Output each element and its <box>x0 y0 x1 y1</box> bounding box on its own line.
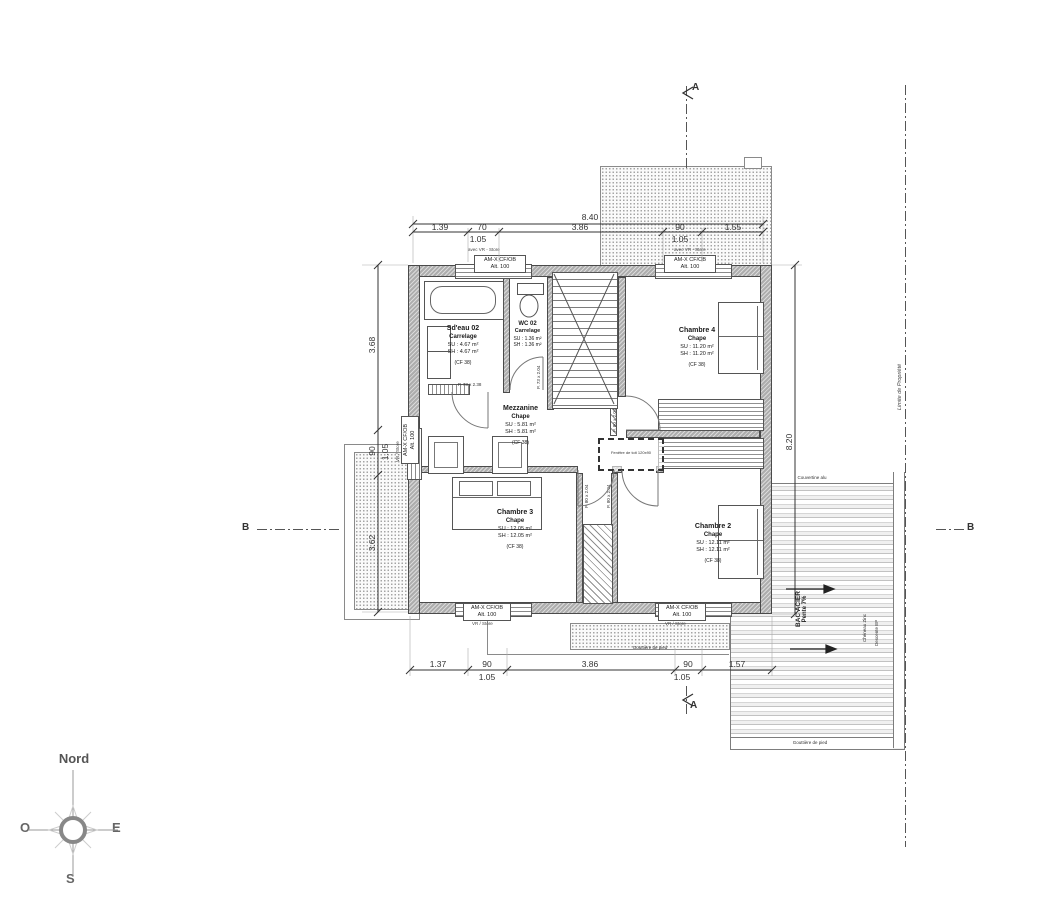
door-label-ch3: P. 80 x 2.04 <box>584 474 589 508</box>
room-sh: SH : 12.05 m² <box>470 533 560 540</box>
descente-ep-label: Descente EP <box>874 592 879 646</box>
room-name: Chambre 2 <box>668 522 758 531</box>
room-name: Mezzanine <box>478 404 563 413</box>
room-sh: SH : 12.11 m² <box>668 547 758 554</box>
room-label-chambre-3: Chambre 3 Chape SU : 12.05 m² SH : 12.05… <box>470 508 560 551</box>
section-a-letter-bottom: A <box>690 700 697 711</box>
room-label-sdeau: Sd'eau 02 Carrelage SU : 4.67 m² SH : 4.… <box>418 324 508 367</box>
window-alt: Alt. 100 <box>667 264 713 271</box>
room-sh: SH : 5.81 m² <box>478 429 563 436</box>
room-name: Sd'eau 02 <box>418 324 508 333</box>
cheneau-band <box>893 472 904 748</box>
room-label-chambre-2: Chambre 2 Chape SU : 12.11 m² SH : 12.11… <box>668 522 758 565</box>
window-name: AM-X CF/OB <box>667 257 713 264</box>
cheneau-label: Chéneau Zinc <box>862 596 867 642</box>
property-line <box>905 85 906 847</box>
dim-bottom-4: 90 <box>668 659 708 669</box>
window-label-top-left: AM-X CF/OB Alt. 100 <box>474 255 526 273</box>
stairs-symbol <box>552 272 618 409</box>
room-name: Chambre 3 <box>470 508 560 517</box>
section-a-letter-top: A <box>692 82 699 93</box>
dim-left-1: 3.68 <box>367 330 377 360</box>
bac-acier-text: BAC ACIER <box>795 578 802 640</box>
wardrobe-symbol-ch2 <box>658 438 764 469</box>
door-label-ch2: P. 80 x 2.04 <box>606 474 611 508</box>
window-label-bottom-left: AM-X CF/OB Alt. 100 <box>463 603 511 621</box>
partition-hall-ch4 <box>618 277 626 397</box>
dim-left-3: 3.62 <box>367 528 377 558</box>
window-label-bottom-right: AM-X CF/OB Alt. 100 <box>658 603 706 621</box>
dim-bottom-5: 1.57 <box>712 659 762 669</box>
property-line-label: Limite de Propriété <box>897 334 903 410</box>
window-name: AM-X CF/OB <box>661 605 703 612</box>
room-sh: SH : 11.20 m² <box>652 351 742 358</box>
window-label-left: AM-X CF/OB Alt. 100 <box>401 416 419 464</box>
room-floor: Carrelage <box>500 328 555 335</box>
closet-symbol <box>583 524 613 604</box>
wardrobe-symbol-ch4 <box>658 399 764 431</box>
room-floor: Chape <box>470 517 560 525</box>
bac-acier-label: BAC ACIER Pente 7% <box>795 578 808 640</box>
window-note-top-right: avec VR - Store <box>674 247 706 252</box>
section-b-letter-right: B <box>967 522 974 533</box>
section-a-line-top <box>686 86 687 168</box>
door-label-ch4: P. 80 x 2.04 <box>612 398 617 432</box>
room-label-chambre-4: Chambre 4 Chape SU : 11.20 m² SH : 11.20… <box>652 326 742 369</box>
dim-top-sub-2: 1.05 <box>660 234 700 244</box>
compass-south-label: S <box>66 871 75 886</box>
window-note-top-left: avec VR - Store <box>468 247 500 252</box>
window-alt: Alt. 100 <box>661 612 703 619</box>
room-note: (CF 38) <box>652 362 742 369</box>
room-su: SU : 5.81 m² <box>478 422 563 429</box>
dim-bottom-sub-1: 1.05 <box>467 672 507 682</box>
room-floor: Chape <box>668 531 758 539</box>
pente-text: Pente 7% <box>802 578 808 640</box>
compass-north-label: Nord <box>52 751 96 766</box>
room-label-wc: WC 02 Carrelage SU : 1.36 m² SH : 1.36 m… <box>500 320 555 349</box>
dim-bottom-3: 3.86 <box>565 659 615 669</box>
room-su: SU : 12.05 m² <box>470 526 560 533</box>
section-b-line-right <box>936 529 964 530</box>
dim-bottom-1: 1.37 <box>413 659 463 669</box>
partition-ch4-ch2 <box>626 430 760 438</box>
window-name: AM-X CF/OB <box>466 605 508 612</box>
dim-right: 8.20 <box>784 428 794 456</box>
room-su: SU : 11.20 m² <box>652 344 742 351</box>
window-label-top-right: AM-X CF/OB Alt. 100 <box>664 255 716 273</box>
room-sh: SH : 1.36 m² <box>500 342 555 349</box>
room-su: SU : 1.36 m² <box>500 336 555 343</box>
dim-top-2: 70 <box>462 222 502 232</box>
dim-bottom-2: 90 <box>467 659 507 669</box>
window-alt: Alt. 100 <box>466 612 508 619</box>
dim-top-1: 1.39 <box>415 222 465 232</box>
room-su: SU : 4.67 m² <box>418 342 508 349</box>
armchair-symbol-1 <box>428 436 464 474</box>
room-name: WC 02 <box>500 320 555 328</box>
room-note: (CF 38) <box>478 440 563 447</box>
dim-top-4: 90 <box>660 222 700 232</box>
dim-bottom-sub-2: 1.05 <box>662 672 702 682</box>
window-note-left: VR / Store <box>395 432 400 462</box>
room-label-mezzanine: Mezzanine Chape SU : 5.81 m² SH : 5.81 m… <box>478 404 563 447</box>
room-note: (CF 38) <box>418 360 508 367</box>
section-b-letter-left: B <box>242 522 249 533</box>
compass-rose <box>28 770 118 876</box>
room-note: (CF 38) <box>470 544 560 551</box>
roof-window-label: Fenêtre de toit 120x90 <box>600 450 662 455</box>
dim-left-2: 90 <box>367 442 377 460</box>
gouttiere-pied-bottom-label: Gouttière de pied <box>770 740 850 745</box>
compass-east-label: E <box>112 820 121 835</box>
section-b-line-left <box>257 529 342 530</box>
window-name: AM-X CF/OB <box>477 257 523 264</box>
room-name: Chambre 4 <box>652 326 742 335</box>
room-floor: Chape <box>652 335 742 343</box>
dim-top-total: 8.40 <box>560 212 620 222</box>
terrace-left-hatch <box>354 452 414 610</box>
room-floor: Carrelage <box>418 333 508 341</box>
door-label-sdeau: P. 73 x 2.38 <box>458 382 481 387</box>
room-su: SU : 12.11 m² <box>668 540 758 547</box>
dim-top-3: 3.86 <box>555 222 605 232</box>
dim-top-sub-1: 1.05 <box>458 234 498 244</box>
gouttiere-pied-mid-label: Gouttière de pied <box>615 645 685 650</box>
door-label-wc: P. 73 x 2.04 <box>536 355 541 389</box>
window-note-bottom-right: VR / Store <box>665 621 686 626</box>
window-alt: Alt. 100 <box>410 419 417 461</box>
window-alt: Alt. 100 <box>477 264 523 271</box>
room-note: (CF 38) <box>668 558 758 565</box>
roof-window-symbol: Fenêtre de toit 120x90 <box>598 438 664 471</box>
compass-west-label: O <box>20 820 30 835</box>
toilet-tank-symbol <box>517 283 544 295</box>
window-name: AM-X CF/OB <box>403 419 410 461</box>
dim-left-sub: 1.05 <box>380 440 390 464</box>
window-note-bottom-left: VR / Store <box>472 621 493 626</box>
roof-notch <box>744 157 762 169</box>
partition-ch3-closet <box>576 473 583 603</box>
room-sh: SH : 4.67 m² <box>418 349 508 356</box>
roof-hatch-top-right <box>600 166 772 268</box>
dim-top-5: 1.55 <box>708 222 758 232</box>
floor-plan-canvas: Couvertine alu Gouttière de pied BAC ACI… <box>0 0 1053 900</box>
bathtub-symbol <box>424 281 504 320</box>
section-a-line-bottom <box>686 686 687 716</box>
room-floor: Chape <box>478 413 563 421</box>
